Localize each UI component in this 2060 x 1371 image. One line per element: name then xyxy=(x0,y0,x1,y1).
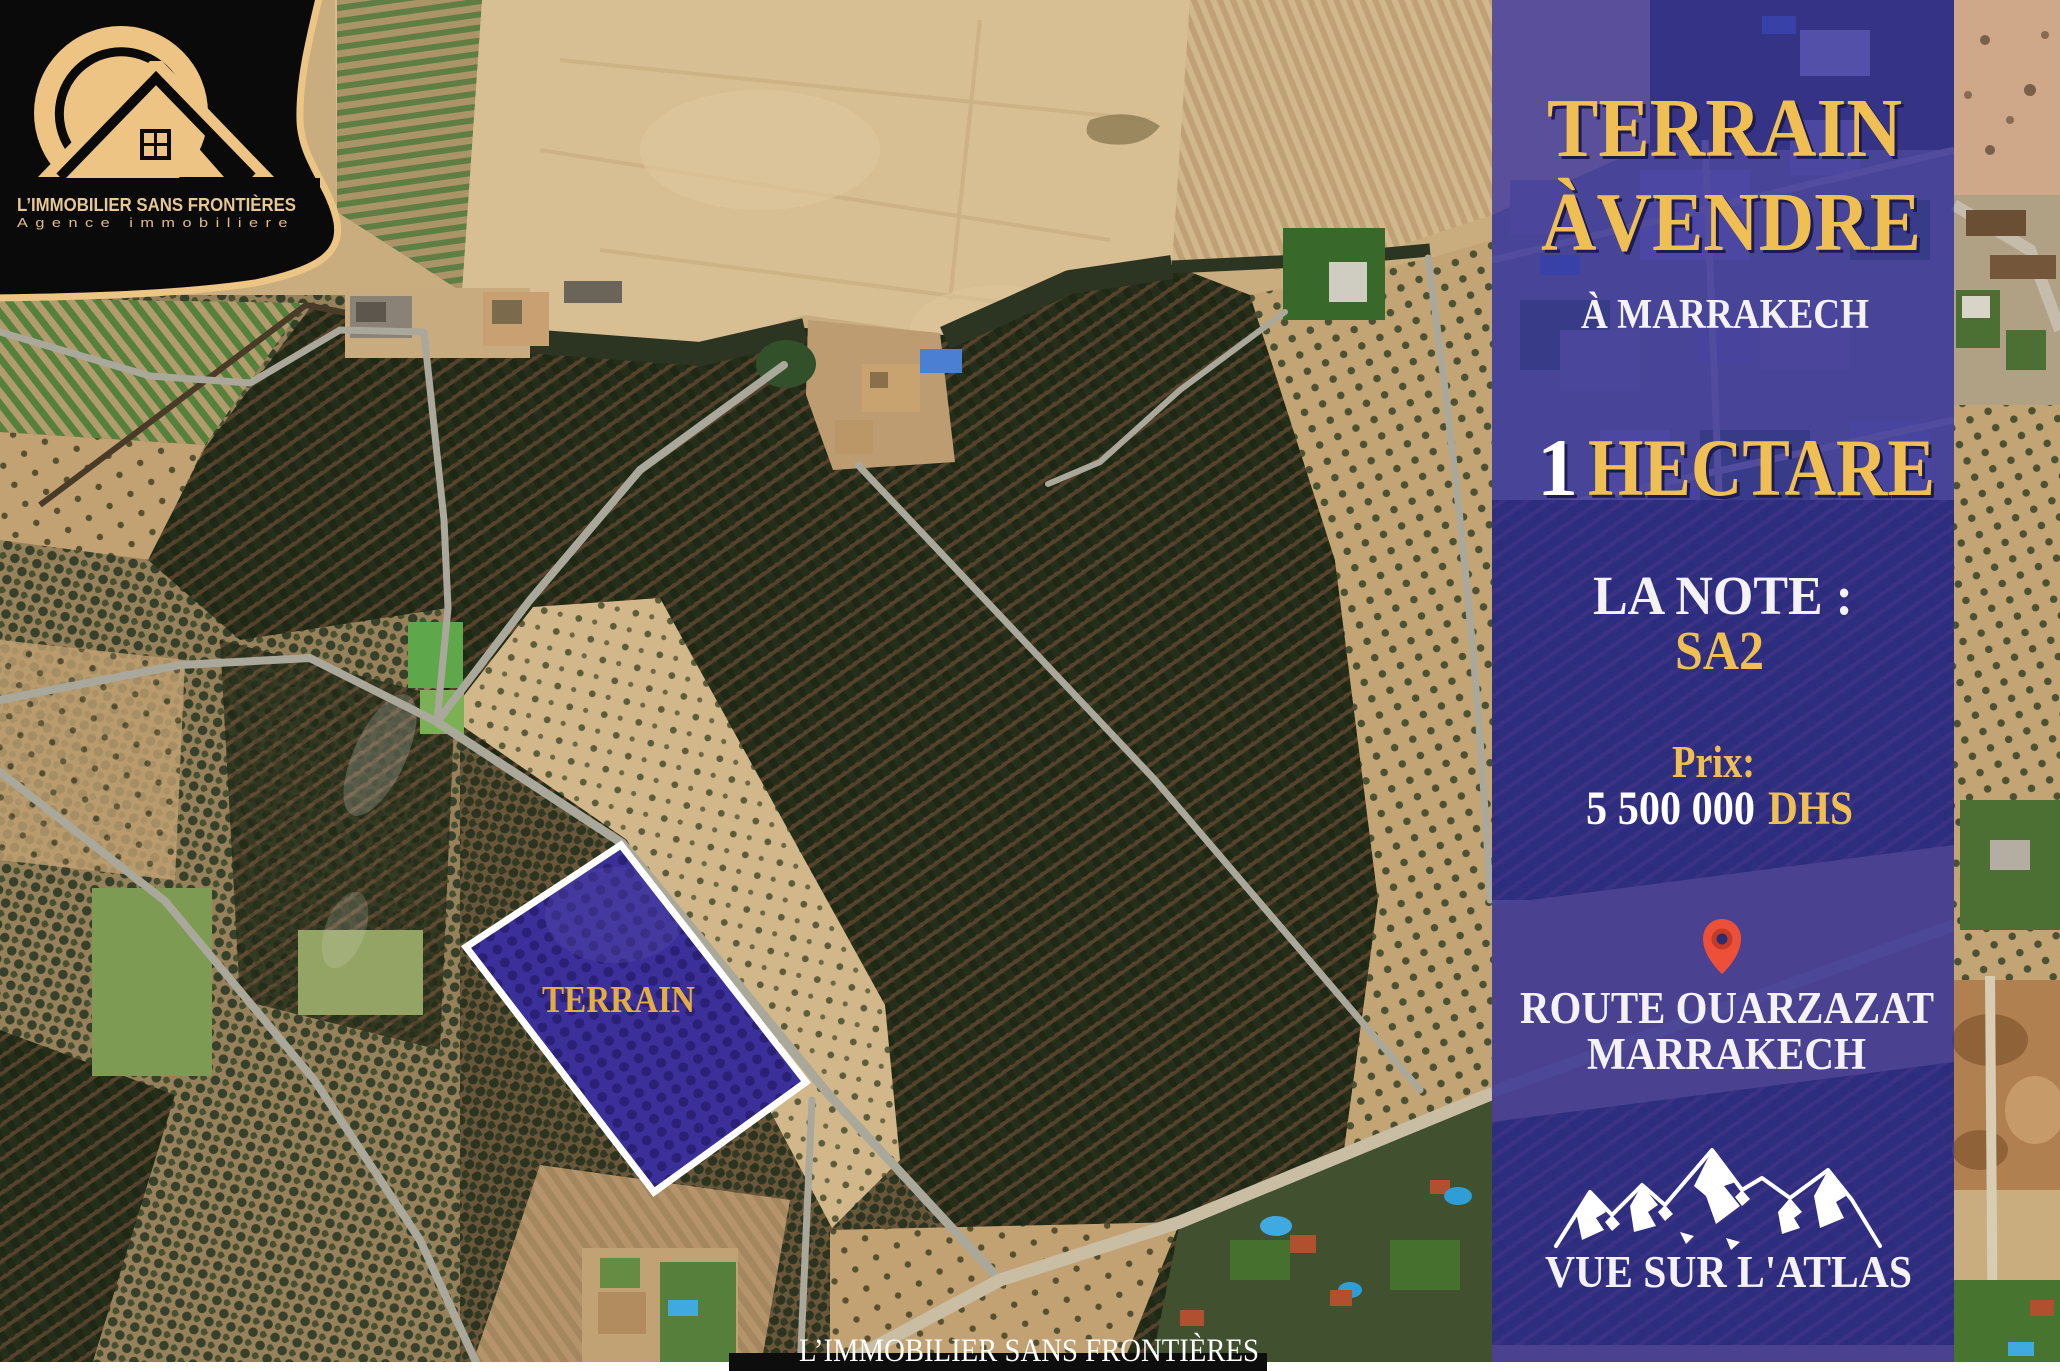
svg-text:MARRAKECH: MARRAKECH xyxy=(1587,1029,1866,1079)
svg-text:À MARRAKECH: À MARRAKECH xyxy=(1581,291,1869,338)
svg-text:1: 1 xyxy=(1537,422,1578,513)
svg-text:HECTARE: HECTARE xyxy=(1588,422,1935,513)
svg-text:SA2: SA2 xyxy=(1675,620,1764,681)
svg-text:5 500 000: 5 500 000 xyxy=(1586,782,1755,835)
svg-text:Agence immobiliere: Agence immobiliere xyxy=(17,215,295,230)
svg-text:ÀVENDRE: ÀVENDRE xyxy=(1541,176,1921,269)
svg-text:Prix:: Prix: xyxy=(1672,736,1755,787)
svg-text:L’IMMOBILIER SANS FRONTIÈRES: L’IMMOBILIER SANS FRONTIÈRES xyxy=(17,194,296,215)
svg-text:VUE SUR L'ATLAS: VUE SUR L'ATLAS xyxy=(1545,1247,1912,1297)
svg-text:L’IMMOBILIER SANS FRONTIÈRES: L’IMMOBILIER SANS FRONTIÈRES xyxy=(799,1332,1259,1369)
svg-text:DHS: DHS xyxy=(1768,782,1853,835)
svg-text:LA NOTE :: LA NOTE : xyxy=(1593,565,1853,626)
svg-text:TERRAIN: TERRAIN xyxy=(1547,82,1902,175)
svg-text:TERRAIN: TERRAIN xyxy=(542,979,695,1021)
svg-text:ROUTE OUARZAZAT: ROUTE OUARZAZAT xyxy=(1520,983,1934,1033)
